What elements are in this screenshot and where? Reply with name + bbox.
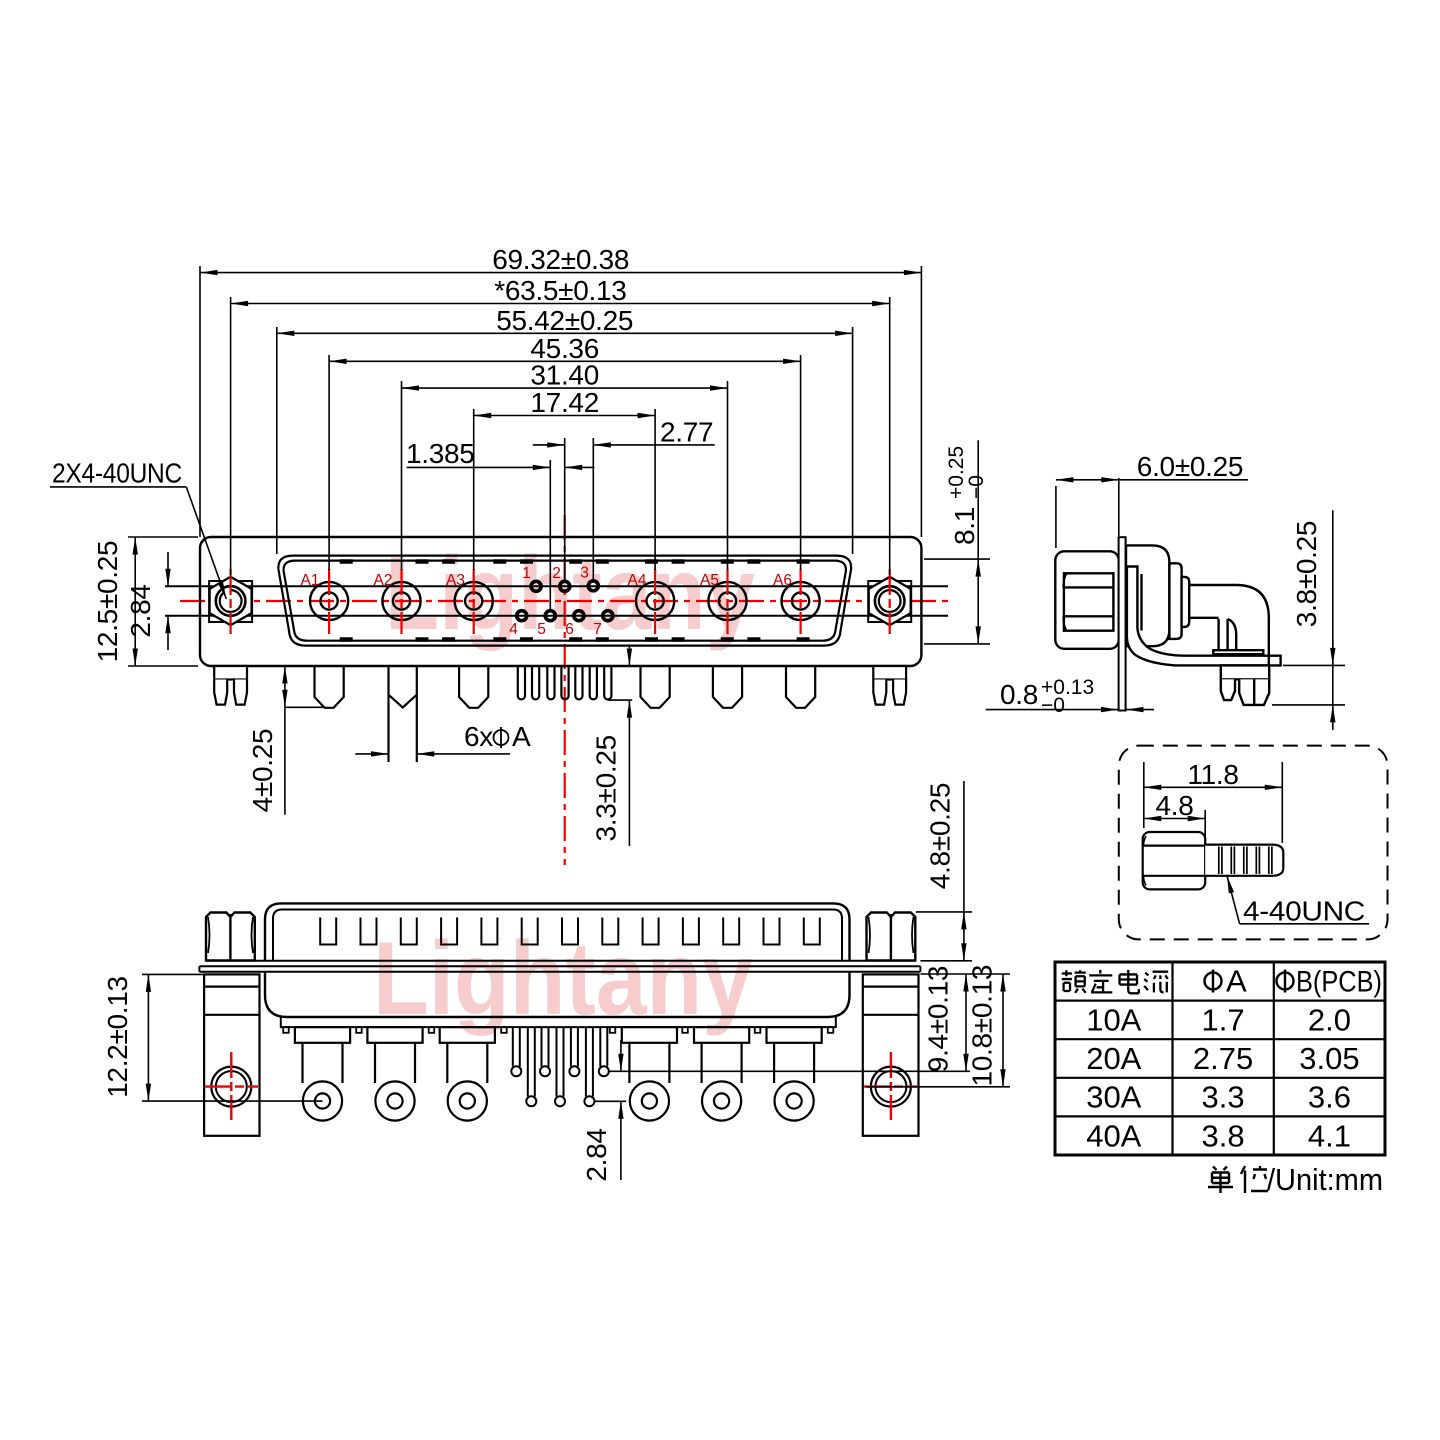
- svg-text:17.42: 17.42: [530, 387, 599, 418]
- svg-text:−0: −0: [965, 475, 988, 499]
- svg-text:1.7: 1.7: [1202, 1003, 1245, 1038]
- svg-text:A1: A1: [301, 572, 320, 589]
- svg-text:3.3±0.25: 3.3±0.25: [591, 735, 622, 841]
- svg-text:2.84: 2.84: [581, 1128, 612, 1181]
- svg-text:4: 4: [509, 621, 518, 638]
- svg-text:2: 2: [552, 565, 561, 582]
- svg-text:0.8: 0.8: [1000, 679, 1038, 710]
- svg-text:7: 7: [593, 621, 602, 638]
- svg-text:1: 1: [522, 565, 531, 582]
- svg-text:3.05: 3.05: [1299, 1041, 1359, 1076]
- svg-text:3.8±0.25: 3.8±0.25: [1291, 521, 1322, 627]
- svg-text:2.0: 2.0: [1308, 1003, 1351, 1038]
- svg-text:11.8: 11.8: [1187, 759, 1238, 790]
- svg-text:4.1: 4.1: [1308, 1118, 1351, 1153]
- svg-text:A: A: [1226, 964, 1247, 999]
- svg-text:6.0±0.25: 6.0±0.25: [1137, 451, 1243, 482]
- svg-text:3.3: 3.3: [1202, 1080, 1245, 1115]
- svg-text:1.385: 1.385: [406, 438, 475, 469]
- svg-text:3: 3: [580, 565, 589, 582]
- svg-text:6: 6: [565, 621, 574, 638]
- svg-text:−0: −0: [1041, 694, 1065, 717]
- svg-text:2.77: 2.77: [660, 417, 713, 448]
- svg-text:12.2±0.13: 12.2±0.13: [102, 976, 133, 1098]
- svg-text:B(PCB): B(PCB): [1296, 966, 1382, 999]
- svg-text:9.4±0.13: 9.4±0.13: [923, 966, 954, 1072]
- svg-text:55.42±0.25: 55.42±0.25: [496, 305, 633, 336]
- svg-text:A4: A4: [628, 572, 647, 589]
- svg-text:10.8±0.13: 10.8±0.13: [966, 965, 997, 1087]
- svg-text:A2: A2: [374, 572, 393, 589]
- svg-text:Lightany: Lightany: [373, 921, 753, 1037]
- svg-text:/Unit:mm: /Unit:mm: [1267, 1163, 1383, 1197]
- svg-text:A3: A3: [446, 572, 465, 589]
- svg-text:4.8: 4.8: [1155, 790, 1193, 821]
- svg-text:6x: 6x: [464, 721, 493, 752]
- svg-text:5: 5: [537, 621, 546, 638]
- svg-text:31.40: 31.40: [530, 360, 599, 391]
- svg-text:40A: 40A: [1086, 1118, 1141, 1153]
- svg-text:2.75: 2.75: [1193, 1041, 1253, 1076]
- svg-text:2.84: 2.84: [125, 584, 156, 637]
- svg-text:A5: A5: [700, 572, 719, 589]
- svg-text:2X4-40UNC: 2X4-40UNC: [52, 458, 182, 489]
- svg-text:4±0.25: 4±0.25: [247, 729, 278, 813]
- svg-text:3.6: 3.6: [1308, 1080, 1351, 1115]
- svg-text:*63.5±0.13: *63.5±0.13: [494, 275, 626, 306]
- svg-text:8.1: 8.1: [949, 507, 980, 545]
- svg-text:4-40UNC: 4-40UNC: [1243, 895, 1365, 926]
- svg-text:4.8±0.25: 4.8±0.25: [925, 783, 956, 889]
- svg-text:A6: A6: [773, 572, 792, 589]
- svg-text:A: A: [512, 721, 531, 752]
- svg-text:20A: 20A: [1086, 1041, 1141, 1076]
- svg-text:30A: 30A: [1086, 1080, 1141, 1115]
- svg-text:12.5±0.25: 12.5±0.25: [92, 541, 123, 663]
- svg-text:3.8: 3.8: [1202, 1118, 1245, 1153]
- svg-text:10A: 10A: [1086, 1003, 1141, 1038]
- svg-text:69.32±0.38: 69.32±0.38: [492, 244, 629, 275]
